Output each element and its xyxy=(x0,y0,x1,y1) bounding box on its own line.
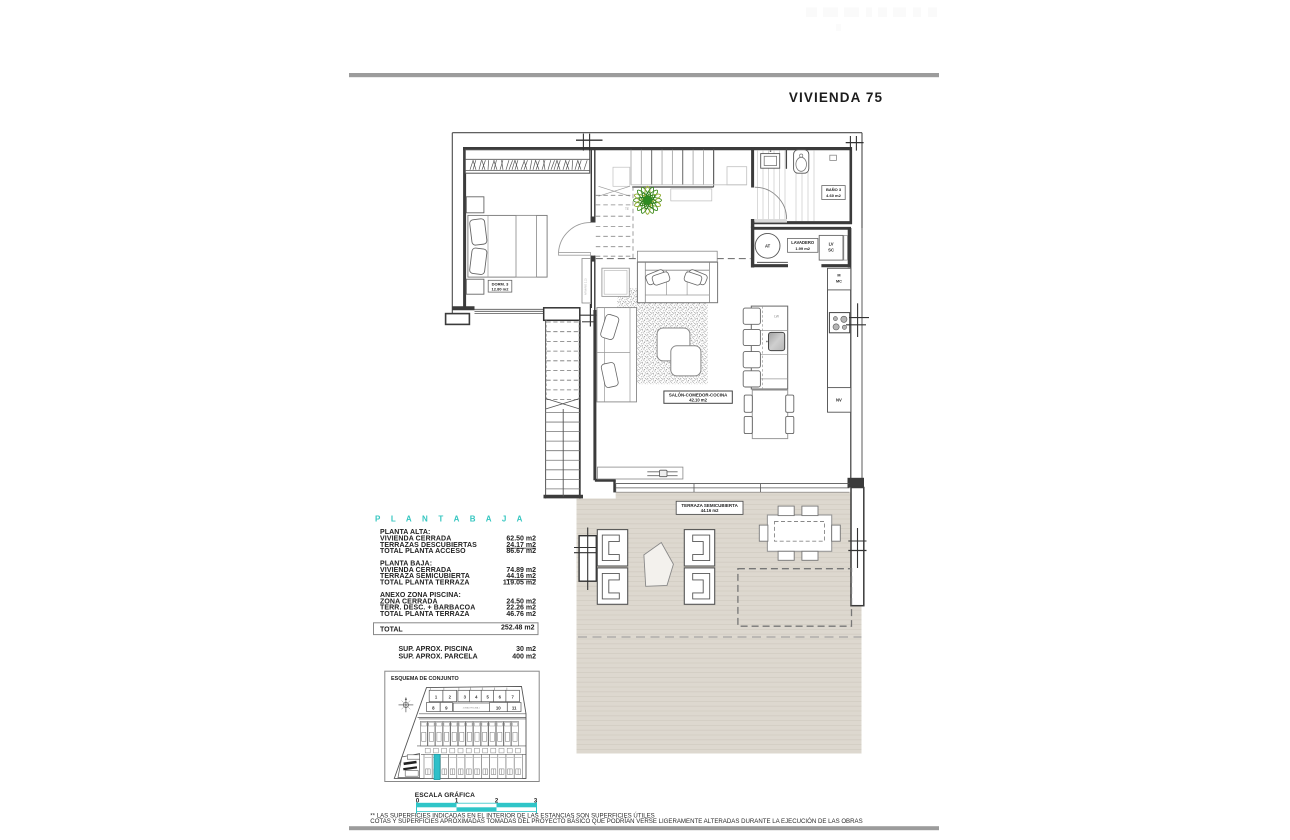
svg-text:TERRAZA SEMICUBIERTA: TERRAZA SEMICUBIERTA xyxy=(681,503,738,508)
svg-text:44.16 m2: 44.16 m2 xyxy=(701,508,719,513)
svg-text:46.76 m2: 46.76 m2 xyxy=(506,611,536,618)
svg-text:12.80 m2: 12.80 m2 xyxy=(492,286,510,291)
svg-text:1.99 m2: 1.99 m2 xyxy=(795,246,810,251)
svg-text:SC: SC xyxy=(828,247,834,252)
svg-text:ESQUEMA DE CONJUNTO: ESQUEMA DE CONJUNTO xyxy=(391,676,459,682)
svg-text:TOTAL: TOTAL xyxy=(380,626,403,633)
svg-text:4.60 m2: 4.60 m2 xyxy=(826,193,841,198)
svg-text:VIVIENDA 75: VIVIENDA 75 xyxy=(789,90,883,105)
svg-text:11: 11 xyxy=(512,705,517,710)
svg-text:TOTAL PLANTA TERRAZA: TOTAL PLANTA TERRAZA xyxy=(380,580,470,587)
svg-text:400 m2: 400 m2 xyxy=(512,654,536,661)
svg-text:TE: TE xyxy=(625,207,629,211)
svg-text:30 m2: 30 m2 xyxy=(516,646,536,653)
svg-text:ZONAS PISCINA 1: ZONAS PISCINA 1 xyxy=(463,706,481,709)
svg-text:SUP. APROX. PARCELA: SUP. APROX. PARCELA xyxy=(399,654,478,661)
svg-text:SALÓN-COMEDOR-COCINA: SALÓN-COMEDOR-COCINA xyxy=(669,392,728,397)
svg-text:MC: MC xyxy=(836,280,842,284)
svg-text:10: 10 xyxy=(496,705,501,710)
svg-text:ARMARIO 2.13: ARMARIO 2.13 xyxy=(585,278,588,295)
svg-text:COTAS Y SUPERFICIES APROXIMADA: COTAS Y SUPERFICIES APROXIMADAS TOMADAS … xyxy=(370,818,862,825)
svg-text:LV: LV xyxy=(829,241,834,246)
svg-text:P L A N T A B A J A: P L A N T A B A J A xyxy=(375,515,527,524)
svg-text:NV: NV xyxy=(836,398,842,403)
svg-text:M: M xyxy=(837,274,840,278)
svg-text:TOTAL PLANTA TERRAZA: TOTAL PLANTA TERRAZA xyxy=(380,611,470,618)
svg-text:LW: LW xyxy=(774,315,780,319)
svg-text:AT: AT xyxy=(765,244,771,249)
svg-text:252.48 m2: 252.48 m2 xyxy=(501,624,535,631)
svg-text:ESCALA GRÁFICA: ESCALA GRÁFICA xyxy=(415,790,475,799)
svg-text:BAÑO 3: BAÑO 3 xyxy=(826,187,842,192)
svg-text:86.67 m2: 86.67 m2 xyxy=(506,548,536,555)
svg-text:42.10 m2: 42.10 m2 xyxy=(689,398,707,403)
svg-text:SUP. APROX. PISCINA: SUP. APROX. PISCINA xyxy=(399,646,473,653)
svg-text:TOTAL PLANTA ACCESO: TOTAL PLANTA ACCESO xyxy=(380,548,466,555)
svg-text:LAVADERO: LAVADERO xyxy=(791,240,815,245)
svg-text:119.05 m2: 119.05 m2 xyxy=(503,580,536,587)
